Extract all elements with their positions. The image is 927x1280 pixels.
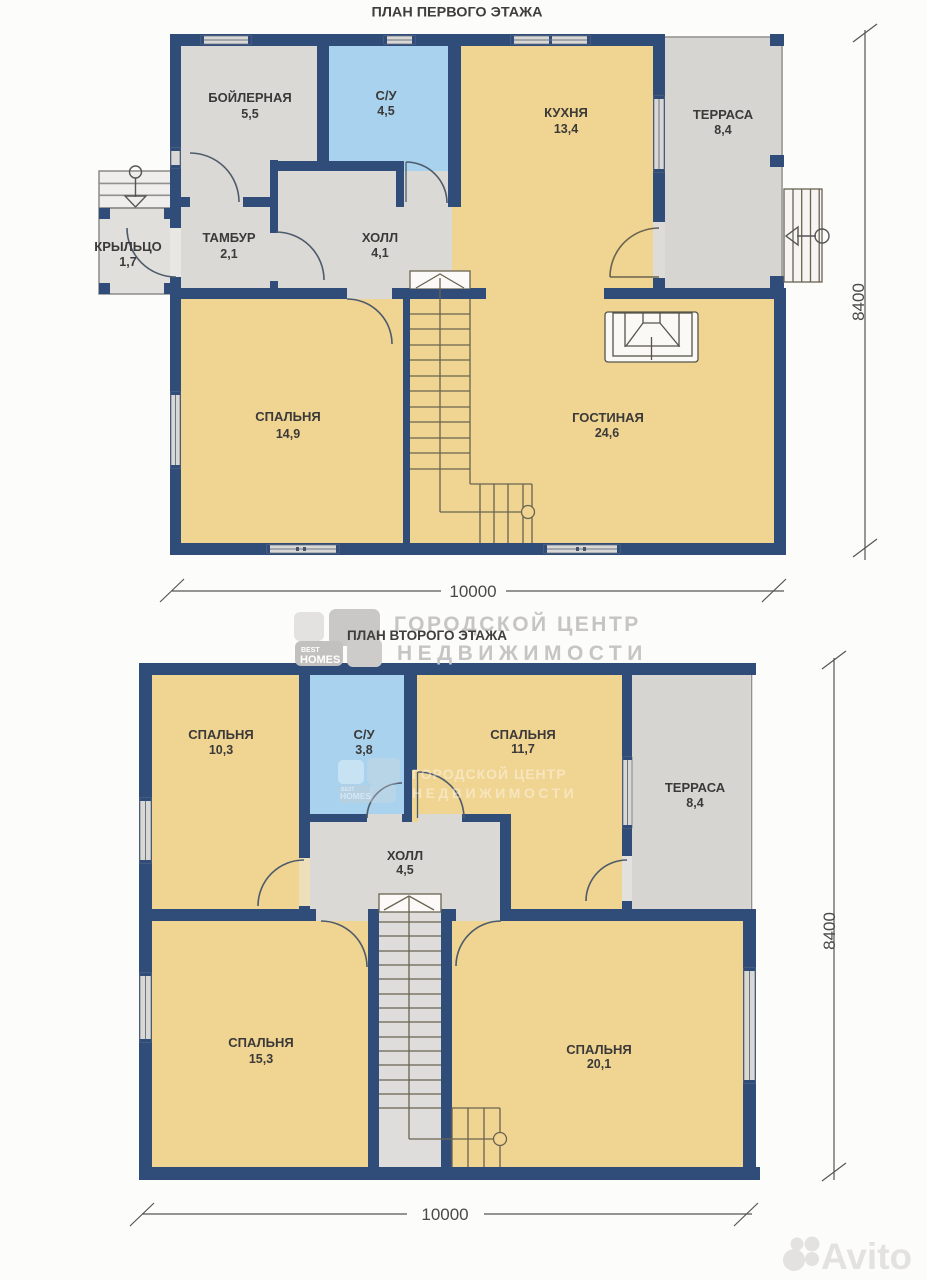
svg-text:10000: 10000	[449, 582, 496, 601]
svg-text:НЕДВИЖИМОСТИ: НЕДВИЖИМОСТИ	[412, 785, 577, 801]
svg-text:15,3: 15,3	[249, 1052, 273, 1066]
svg-text:С/У: С/У	[375, 88, 397, 103]
svg-text:20,1: 20,1	[587, 1057, 611, 1071]
svg-text:СПАЛЬНЯ: СПАЛЬНЯ	[188, 727, 253, 742]
svg-text:ТЕРРАСА: ТЕРРАСА	[693, 107, 754, 122]
svg-text:ХОЛЛ: ХОЛЛ	[362, 230, 398, 245]
svg-text:ГОРОДСКОЙ ЦЕНТР: ГОРОДСКОЙ ЦЕНТР	[412, 765, 567, 782]
svg-text:13,4: 13,4	[554, 122, 578, 136]
svg-text:8,4: 8,4	[686, 796, 703, 810]
svg-text:С/У: С/У	[353, 727, 375, 742]
svg-text:СПАЛЬНЯ: СПАЛЬНЯ	[566, 1042, 631, 1057]
svg-text:3,8: 3,8	[355, 743, 372, 757]
svg-text:СПАЛЬНЯ: СПАЛЬНЯ	[255, 409, 320, 424]
svg-text:ПЛАН ПЕРВОГО ЭТАЖА: ПЛАН ПЕРВОГО ЭТАЖА	[372, 4, 543, 20]
svg-text:10,3: 10,3	[209, 743, 233, 757]
svg-text:Avito: Avito	[821, 1236, 912, 1277]
svg-text:10000: 10000	[421, 1205, 468, 1224]
svg-text:5,5: 5,5	[241, 107, 258, 121]
svg-text:КРЫЛЬЦО: КРЫЛЬЦО	[94, 239, 161, 254]
svg-text:HOMES: HOMES	[300, 654, 340, 666]
svg-text:8,4: 8,4	[714, 123, 731, 137]
svg-text:СПАЛЬНЯ: СПАЛЬНЯ	[490, 727, 555, 742]
svg-text:4,5: 4,5	[396, 863, 413, 877]
svg-text:ПЛАН ВТОРОГО ЭТАЖА: ПЛАН ВТОРОГО ЭТАЖА	[347, 627, 507, 643]
svg-text:ГОСТИНАЯ: ГОСТИНАЯ	[572, 410, 644, 425]
svg-text:11,7: 11,7	[511, 742, 535, 756]
svg-text:HOMES: HOMES	[340, 791, 372, 801]
svg-text:2,1: 2,1	[220, 247, 237, 261]
svg-text:НЕДВИЖИМОСТИ: НЕДВИЖИМОСТИ	[397, 642, 648, 665]
svg-text:ТЕРРАСА: ТЕРРАСА	[665, 780, 726, 795]
svg-text:8400: 8400	[820, 912, 839, 950]
svg-text:14,9: 14,9	[276, 427, 300, 441]
svg-text:БОЙЛЕРНАЯ: БОЙЛЕРНАЯ	[208, 90, 291, 105]
svg-text:4,1: 4,1	[371, 246, 388, 260]
svg-text:4,5: 4,5	[377, 104, 394, 118]
svg-text:BEST: BEST	[301, 647, 320, 654]
svg-text:ХОЛЛ: ХОЛЛ	[387, 848, 423, 863]
svg-text:КУХНЯ: КУХНЯ	[544, 105, 588, 120]
svg-text:8400: 8400	[849, 283, 868, 321]
svg-text:1,7: 1,7	[119, 255, 136, 269]
svg-text:ТАМБУР: ТАМБУР	[202, 230, 255, 245]
svg-text:СПАЛЬНЯ: СПАЛЬНЯ	[228, 1035, 293, 1050]
svg-text:24,6: 24,6	[595, 426, 619, 440]
